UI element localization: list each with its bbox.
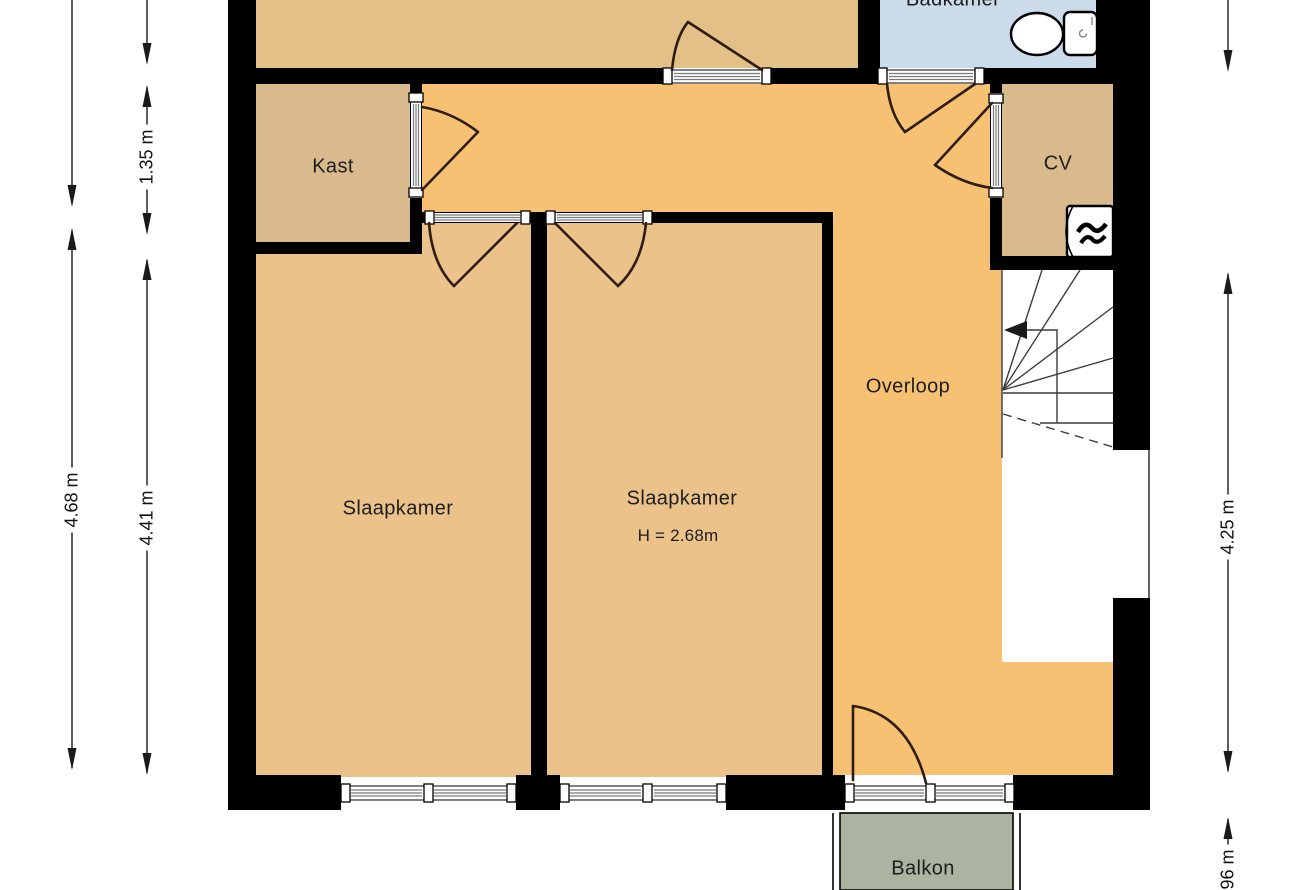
room-label-cv: CV xyxy=(1044,153,1073,176)
window-balcony-door xyxy=(845,784,1014,802)
room-label-balkon: Balkon xyxy=(891,858,955,881)
window-bedroom-right xyxy=(560,784,726,802)
room-label-slaapkamer-left: Slaapkamer xyxy=(343,498,454,521)
dimension-label-0-96: .96 m xyxy=(1216,844,1241,890)
windows xyxy=(341,784,1014,802)
staircase xyxy=(1002,270,1115,662)
room-label-badkamer: Badkamer xyxy=(906,0,1000,12)
dimension-label-4-25: 4.25 m xyxy=(1216,494,1241,559)
room-label-ceiling-height: H = 2.68m xyxy=(638,526,719,546)
dimension-label-4-41: 4.41 m xyxy=(135,485,160,550)
top-room-floor xyxy=(256,0,858,68)
room-label-kast: Kast xyxy=(312,156,354,179)
dimension-label-1-35: 1.35 m xyxy=(135,124,160,189)
dimension-label-4-68: 4.68 m xyxy=(60,467,85,532)
boiler-flame-icon xyxy=(1066,206,1113,257)
room-label-overloop: Overloop xyxy=(866,376,950,399)
floor-plan-drawing xyxy=(0,0,1300,890)
toilet-icon xyxy=(1011,12,1097,55)
room-label-slaapkamer-right: Slaapkamer xyxy=(627,488,738,511)
floor-plan: Badkamer Kast CV Overloop Slaapkamer Sla… xyxy=(0,0,1300,890)
window-bedroom-left xyxy=(341,784,516,802)
